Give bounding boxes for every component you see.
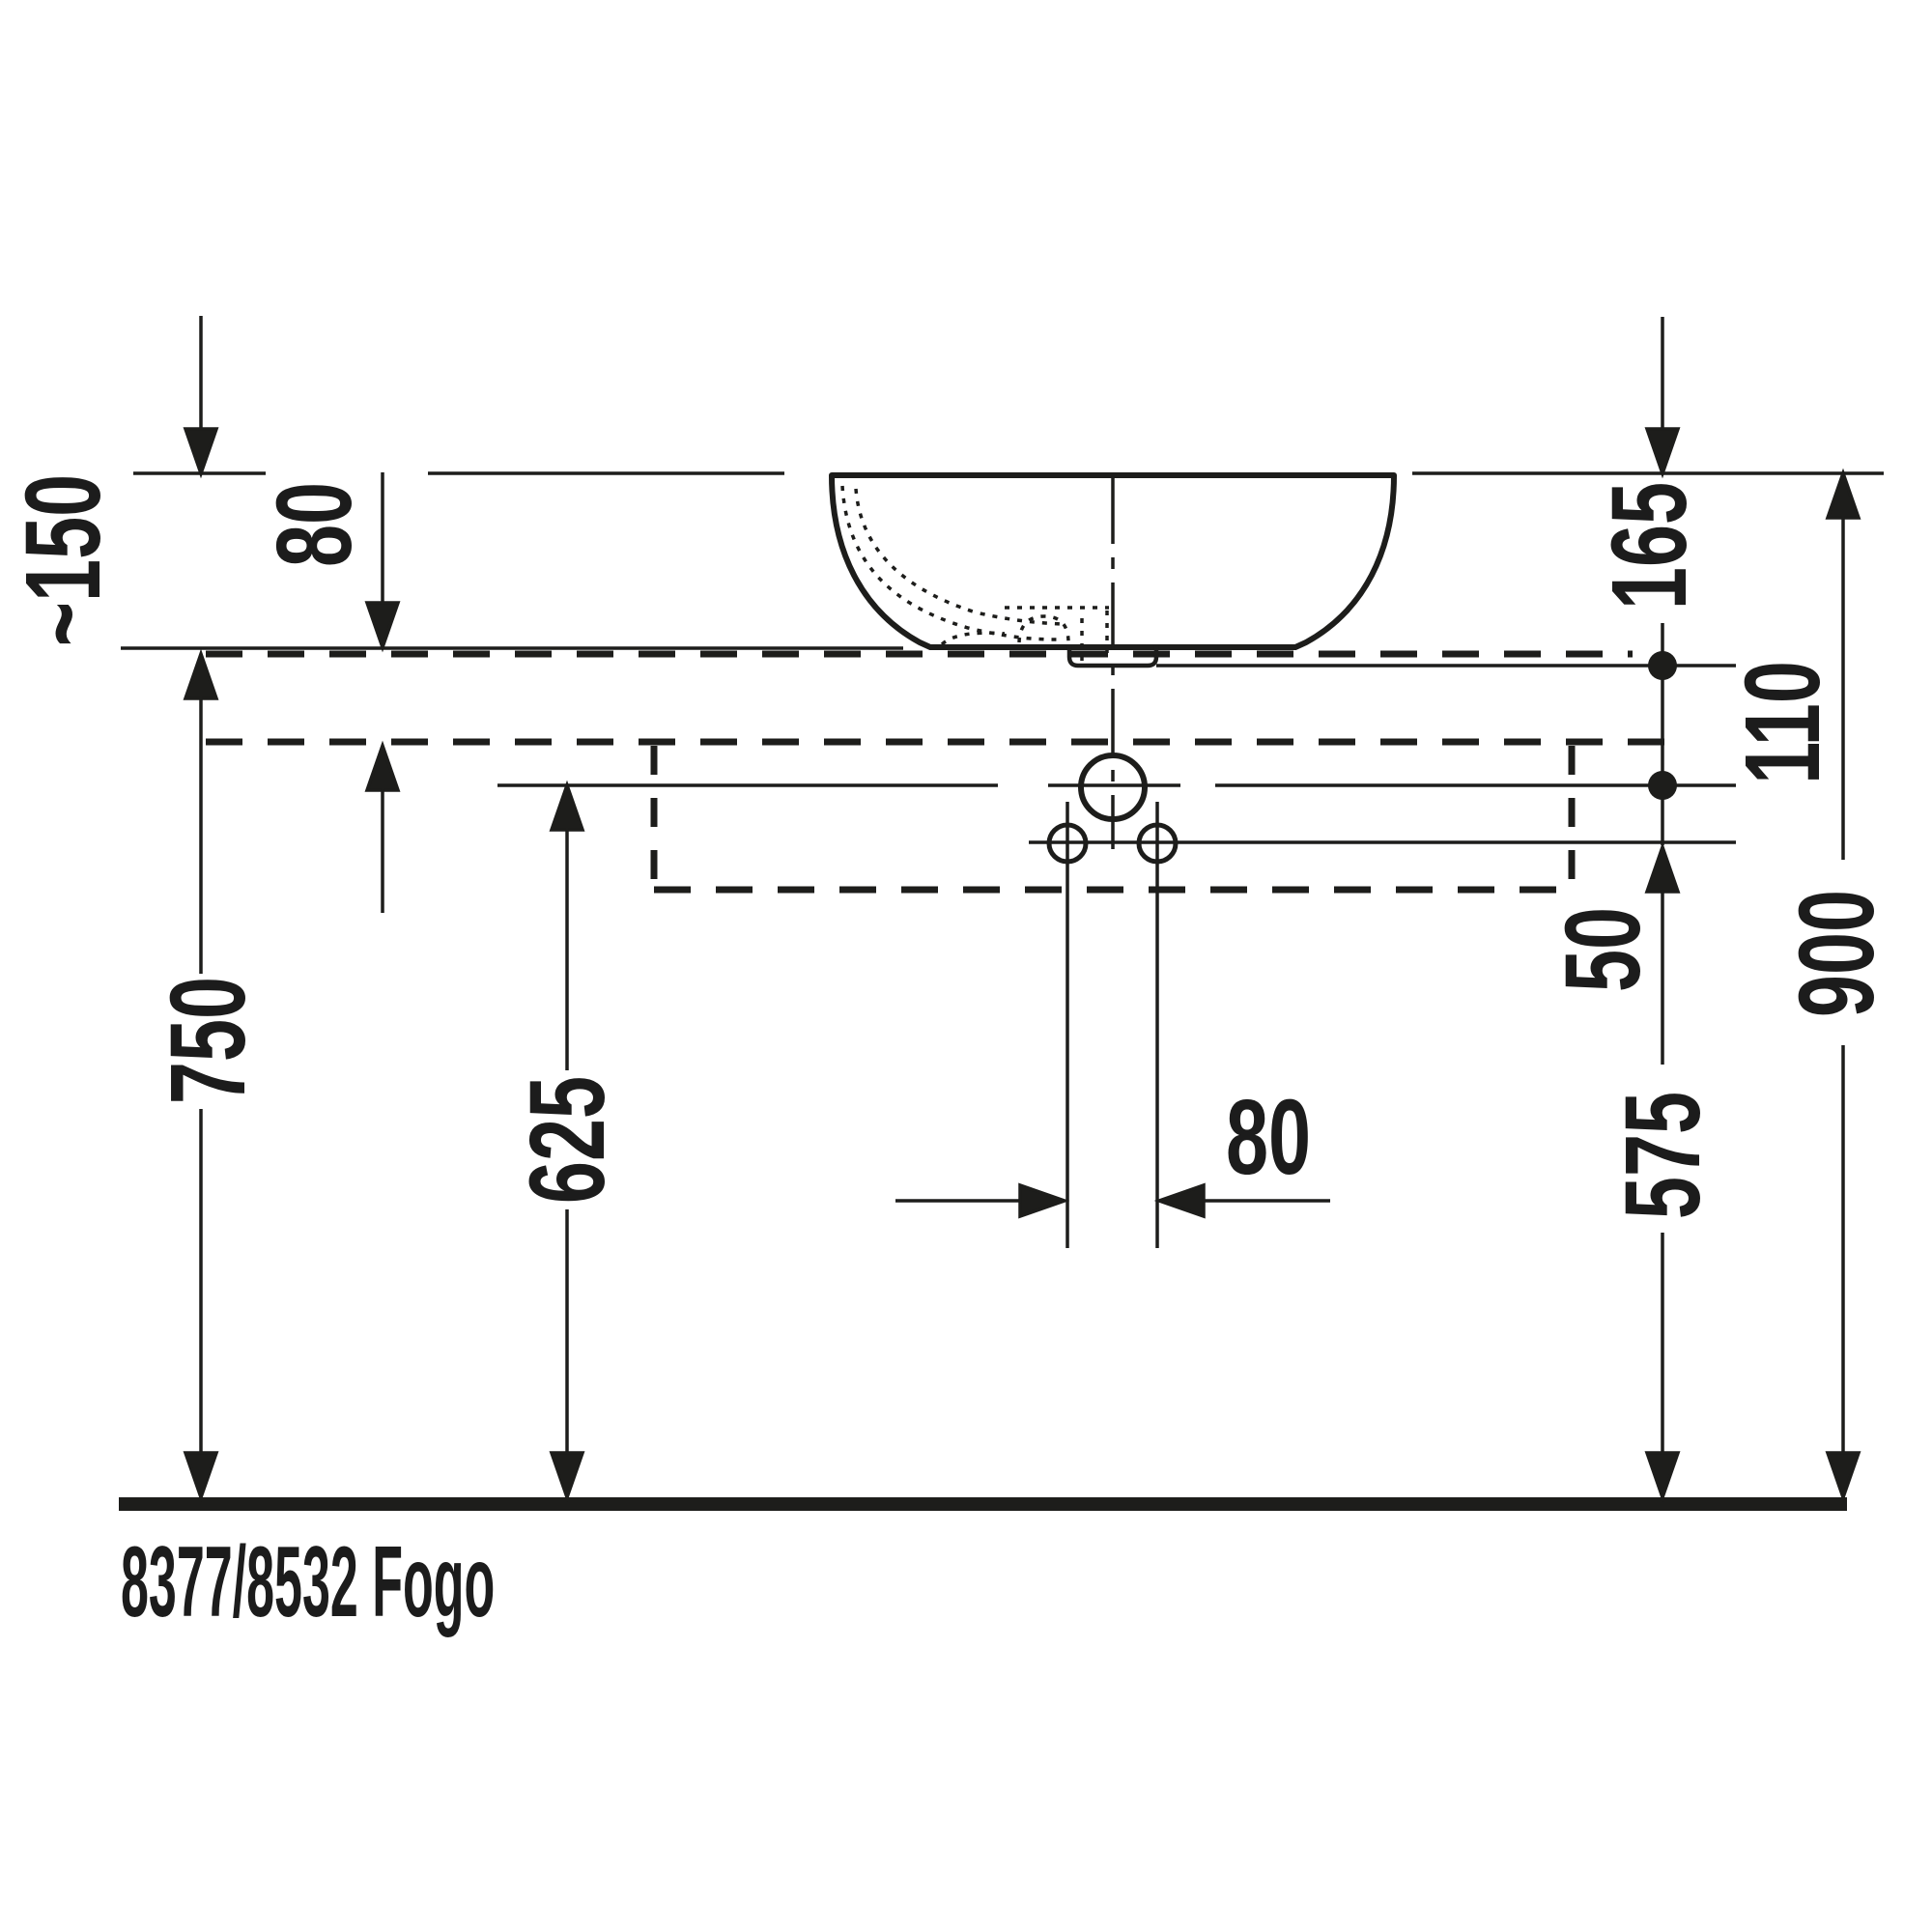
- dim-label-50: 50: [1550, 907, 1657, 992]
- floor-line: [119, 1497, 1847, 1511]
- dim-label-900: 900: [1784, 890, 1890, 1017]
- countertop-line: [121, 648, 1633, 654]
- drawing-title: 8377/8532 Fogo: [121, 1532, 495, 1633]
- dim-label-110: 110: [1730, 661, 1836, 784]
- dim-label-80-bottom: 80: [1226, 1085, 1311, 1191]
- dim-label-80-left: 80: [262, 482, 368, 567]
- dim-label-750: 750: [156, 977, 262, 1104]
- dim-label-625: 625: [515, 1076, 621, 1204]
- reference-dot-upper: [1648, 651, 1677, 680]
- dim-label-165: 165: [1597, 482, 1703, 610]
- washbowl: [832, 475, 1394, 849]
- console-hidden-outline: [206, 742, 1681, 890]
- dim-label-575: 575: [1610, 1092, 1717, 1219]
- fixing-holes: [1049, 802, 1176, 1248]
- technical-drawing: ~150 80 165 110 750 625 50 575 900 80 83…: [0, 0, 1932, 1932]
- dim-label-150: ~150: [11, 474, 117, 646]
- reference-dot-lower: [1648, 771, 1677, 800]
